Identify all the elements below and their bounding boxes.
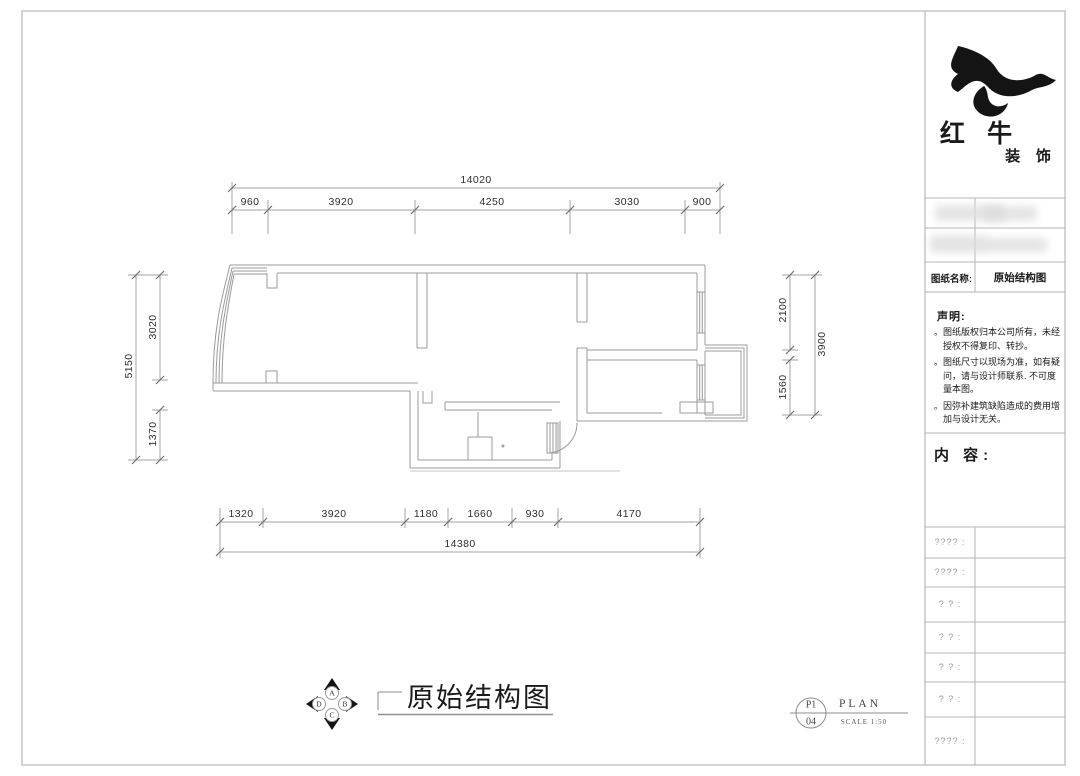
dim-left-seg: 3020 <box>147 315 159 340</box>
dim-top-seg: 960 <box>241 196 260 208</box>
window-right <box>697 265 705 350</box>
footer-drawing-title: 原始结构图 <box>407 676 552 715</box>
dim-top-total: 14020 <box>460 174 491 186</box>
balcony-door <box>697 351 705 415</box>
statement-title: 声明: <box>937 308 966 324</box>
redbull-logo-icon <box>951 46 1056 117</box>
content-label: 内 容: <box>934 444 993 465</box>
dim-left-seg: 1370 <box>147 422 159 447</box>
bathroom-fixtures <box>468 412 505 460</box>
statement-text: 图纸版权归本公司所有，未经授权不得复印、转抄。 <box>943 326 1062 353</box>
info-row-label: ???? : <box>925 537 975 547</box>
info-row-label: ???? : <box>925 736 975 746</box>
bay-window <box>213 265 267 383</box>
dim-right-seg: 2100 <box>777 298 789 323</box>
dim-bottom-seg: 1180 <box>414 508 438 520</box>
brand-suffix: 装 饰 <box>995 145 1067 166</box>
statement-list: 。 图纸版权归本公司所有，未经授权不得复印、转抄。 。 图纸尺寸以现场为准，如有… <box>934 326 1062 430</box>
drawing-name-label: 图纸名称: <box>928 271 975 285</box>
statement-text: 因弥补建筑缺陷造成的费用增加与设计无关。 <box>943 400 1062 427</box>
drawing-sheet: 14020 960 3920 4250 3030 900 1320 3920 1… <box>0 0 1080 776</box>
compass-letter-b: B <box>342 700 347 709</box>
dim-right-total: 3900 <box>816 332 828 357</box>
statement-item: 。 因弥补建筑缺陷造成的费用增加与设计无关。 <box>934 400 1062 427</box>
dim-bottom-seg: 930 <box>526 508 545 520</box>
plan-label: PLAN <box>839 698 881 710</box>
dim-right-seg: 1560 <box>777 375 789 400</box>
dimension-lines <box>128 182 822 558</box>
balcony <box>705 345 747 421</box>
cad-linework <box>0 0 1080 776</box>
info-row-label: ? ? : <box>925 632 975 642</box>
dim-top-seg: 3030 <box>615 196 640 208</box>
info-row-label: ???? : <box>925 567 975 577</box>
sheet-code-bottom: 04 <box>806 717 816 728</box>
bullet: 。 <box>934 326 943 353</box>
dim-bottom-seg: 3920 <box>322 508 347 520</box>
plan-walls <box>213 265 747 471</box>
dim-top-seg: 3920 <box>329 196 354 208</box>
door-arc <box>547 423 577 453</box>
compass-letter-c: C <box>329 711 334 720</box>
dim-top-seg: 4250 <box>480 196 505 208</box>
compass-icon <box>306 678 358 730</box>
dimension-ticks <box>132 184 819 556</box>
bullet: 。 <box>934 356 943 397</box>
compass-letter-a: A <box>329 689 334 698</box>
sheet-code-top: P1 <box>806 700 817 711</box>
compass-letter-d: D <box>316 700 321 709</box>
sheet-border <box>22 11 1065 765</box>
info-row-label: ? ? : <box>925 599 975 609</box>
dim-top-seg: 900 <box>693 196 712 208</box>
dim-bottom-seg: 1660 <box>468 508 493 520</box>
dim-left-total: 5150 <box>123 354 135 379</box>
scale-label: SCALE 1:50 <box>841 718 887 726</box>
redacted-contact-info <box>982 206 1037 221</box>
info-row-label: ? ? : <box>925 662 975 672</box>
statement-text: 图纸尺寸以现场为准，如有疑问，请与设计师联系. 不可度量本图。 <box>943 356 1062 397</box>
dim-bottom-seg: 4170 <box>617 508 642 520</box>
info-row-label: ? ? : <box>925 694 975 704</box>
statement-item: 。 图纸尺寸以现场为准，如有疑问，请与设计师联系. 不可度量本图。 <box>934 356 1062 397</box>
drawing-name-value: 原始结构图 <box>975 270 1065 285</box>
bullet: 。 <box>934 400 943 427</box>
redacted-contact-info <box>985 238 1047 252</box>
dim-bottom-seg: 1320 <box>229 508 254 520</box>
redacted-contact-info <box>930 235 988 253</box>
dim-bottom-total: 14380 <box>444 538 475 550</box>
statement-item: 。 图纸版权归本公司所有，未经授权不得复印、转抄。 <box>934 326 1062 353</box>
